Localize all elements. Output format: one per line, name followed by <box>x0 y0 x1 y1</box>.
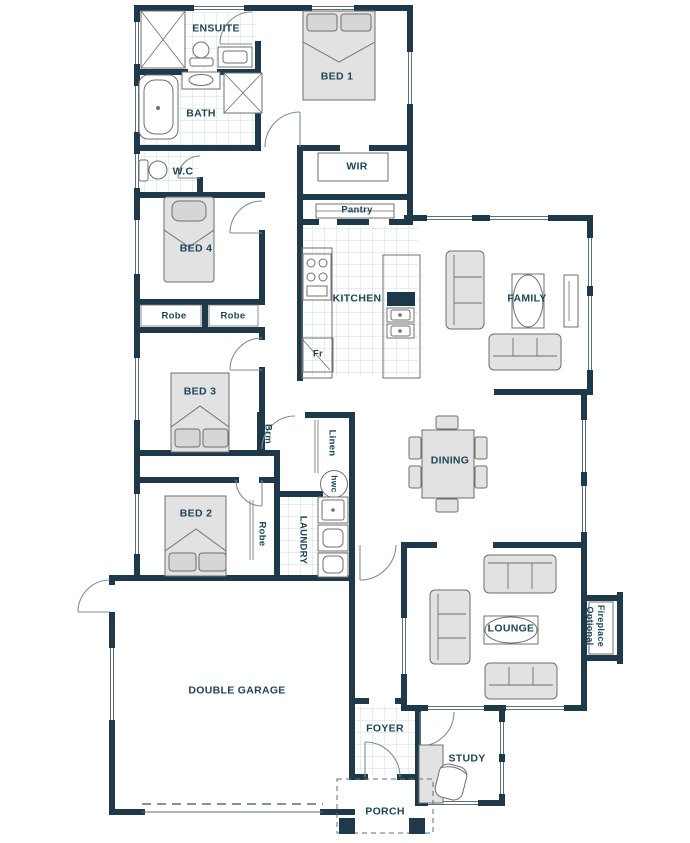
bed4-door <box>230 201 262 233</box>
room-label-lounge: LOUNGE <box>488 624 535 635</box>
room-label-bed2: BED 2 <box>180 509 212 520</box>
room-label-bed3: BED 3 <box>184 387 216 398</box>
lounge-sofa-bottom <box>485 663 557 699</box>
floor-plan-drawing <box>0 0 690 843</box>
wc-toilet <box>139 160 167 181</box>
garage-door <box>142 804 323 812</box>
linen-shelf <box>315 420 318 473</box>
room-label-robe-bed4-left: Robe <box>162 311 187 322</box>
room-label-pantry: Pantry <box>341 205 372 216</box>
laundry-dryer <box>318 553 348 577</box>
room-label-robe-bed4-right: Robe <box>221 311 246 322</box>
room-label-robe-bed2: Robe <box>257 522 268 547</box>
ensuite-vanity <box>218 47 252 67</box>
room-label-kitchen: KITCHEN <box>333 294 382 305</box>
room-label-fridge: Fr <box>313 349 323 360</box>
room-label-fireplace: Fireplace Optional <box>584 596 606 656</box>
kitchen-stove <box>303 254 331 300</box>
family-tv-unit <box>564 275 578 327</box>
bed2-robe-rail <box>250 500 253 560</box>
island-cooktop <box>387 292 415 306</box>
hall-door <box>360 545 396 580</box>
room-label-laundry: LAUNDRY <box>298 516 309 564</box>
lounge-sofa-top <box>484 555 556 593</box>
room-label-porch: PORCH <box>365 807 404 818</box>
bath-shower <box>224 73 262 113</box>
bath-vanity <box>182 72 220 89</box>
ensuite-shower <box>141 11 185 68</box>
room-label-broom: Brm <box>263 424 274 444</box>
room-label-ensuite: ENSUITE <box>192 24 240 35</box>
laundry-washer <box>318 525 348 551</box>
room-label-linen: Linen <box>327 430 338 457</box>
room-label-wc: W.C <box>173 167 194 178</box>
room-label-garage: DOUBLE GARAGE <box>188 686 285 697</box>
room-label-wir: WIR <box>346 162 367 173</box>
porch-column-right <box>409 818 425 834</box>
room-label-bed1: BED 1 <box>321 72 353 83</box>
garage-side-door <box>78 580 110 612</box>
floor-plan: ENSUITE BED 1 BATH W.C WIR Pantry BED 4 … <box>0 0 690 843</box>
room-label-family: FAMILY <box>507 294 546 305</box>
lounge-sofa-left <box>430 590 470 664</box>
bed3-door <box>230 338 262 370</box>
room-label-bed4: BED 4 <box>180 244 212 255</box>
room-label-foyer: FOYER <box>366 724 404 735</box>
laundry-tub <box>318 497 348 523</box>
bathtub <box>139 75 178 139</box>
study-door <box>420 712 454 746</box>
room-label-hwc: hwc <box>329 475 340 492</box>
family-sofa-left <box>446 251 484 329</box>
porch-column-left <box>339 818 355 834</box>
room-label-study: STUDY <box>448 754 485 765</box>
bed2-door <box>236 480 262 506</box>
room-label-bath: BATH <box>186 109 216 120</box>
family-sofa-bottom <box>489 334 561 370</box>
bed1-furniture <box>303 11 375 100</box>
room-label-dining: DINING <box>431 456 470 467</box>
hall-bath-door <box>265 112 300 147</box>
bed4-furniture <box>164 197 214 282</box>
